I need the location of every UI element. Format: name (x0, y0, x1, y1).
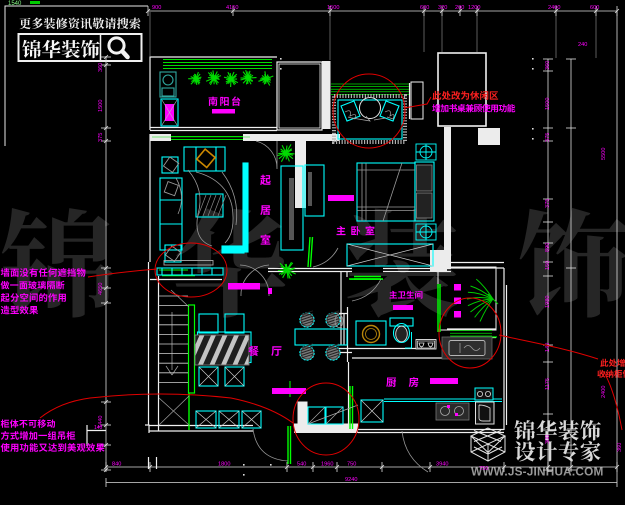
svg-text:320: 320 (438, 5, 447, 11)
svg-text:540: 540 (297, 462, 306, 468)
svg-text:3940: 3940 (436, 462, 448, 468)
svg-text:1980: 1980 (545, 296, 551, 308)
svg-text:375: 375 (545, 133, 551, 142)
svg-text:600: 600 (590, 5, 599, 11)
svg-text:360: 360 (545, 61, 551, 70)
svg-text:2400: 2400 (548, 5, 560, 11)
svg-text:600: 600 (420, 5, 429, 11)
svg-text:375: 375 (98, 133, 104, 142)
svg-text:360: 360 (617, 443, 623, 452)
svg-text:1960: 1960 (321, 462, 333, 468)
svg-text:200: 200 (455, 5, 464, 11)
svg-text:1540: 1540 (8, 1, 22, 7)
svg-text:750: 750 (479, 466, 488, 472)
svg-text:1500: 1500 (98, 100, 104, 112)
svg-text:900: 900 (152, 5, 161, 11)
svg-text:1500: 1500 (545, 98, 551, 110)
svg-text:750: 750 (347, 462, 356, 468)
svg-text:300: 300 (545, 435, 551, 444)
svg-text:1175: 1175 (545, 378, 551, 390)
svg-text:890: 890 (545, 243, 551, 252)
svg-text:1500: 1500 (327, 5, 339, 11)
svg-text:5500: 5500 (601, 148, 607, 160)
svg-text:4650: 4650 (98, 283, 104, 295)
svg-text:140: 140 (545, 343, 551, 352)
svg-text:360: 360 (98, 63, 104, 72)
svg-text:1800: 1800 (218, 462, 230, 468)
svg-text:840: 840 (112, 462, 121, 468)
svg-text:1200: 1200 (468, 5, 480, 11)
svg-text:150: 150 (545, 261, 551, 270)
svg-text:375: 375 (545, 199, 551, 208)
svg-text:2400: 2400 (601, 386, 607, 398)
svg-text:9240: 9240 (345, 477, 357, 483)
svg-text:240: 240 (578, 42, 587, 48)
svg-text:4150: 4150 (226, 5, 238, 11)
